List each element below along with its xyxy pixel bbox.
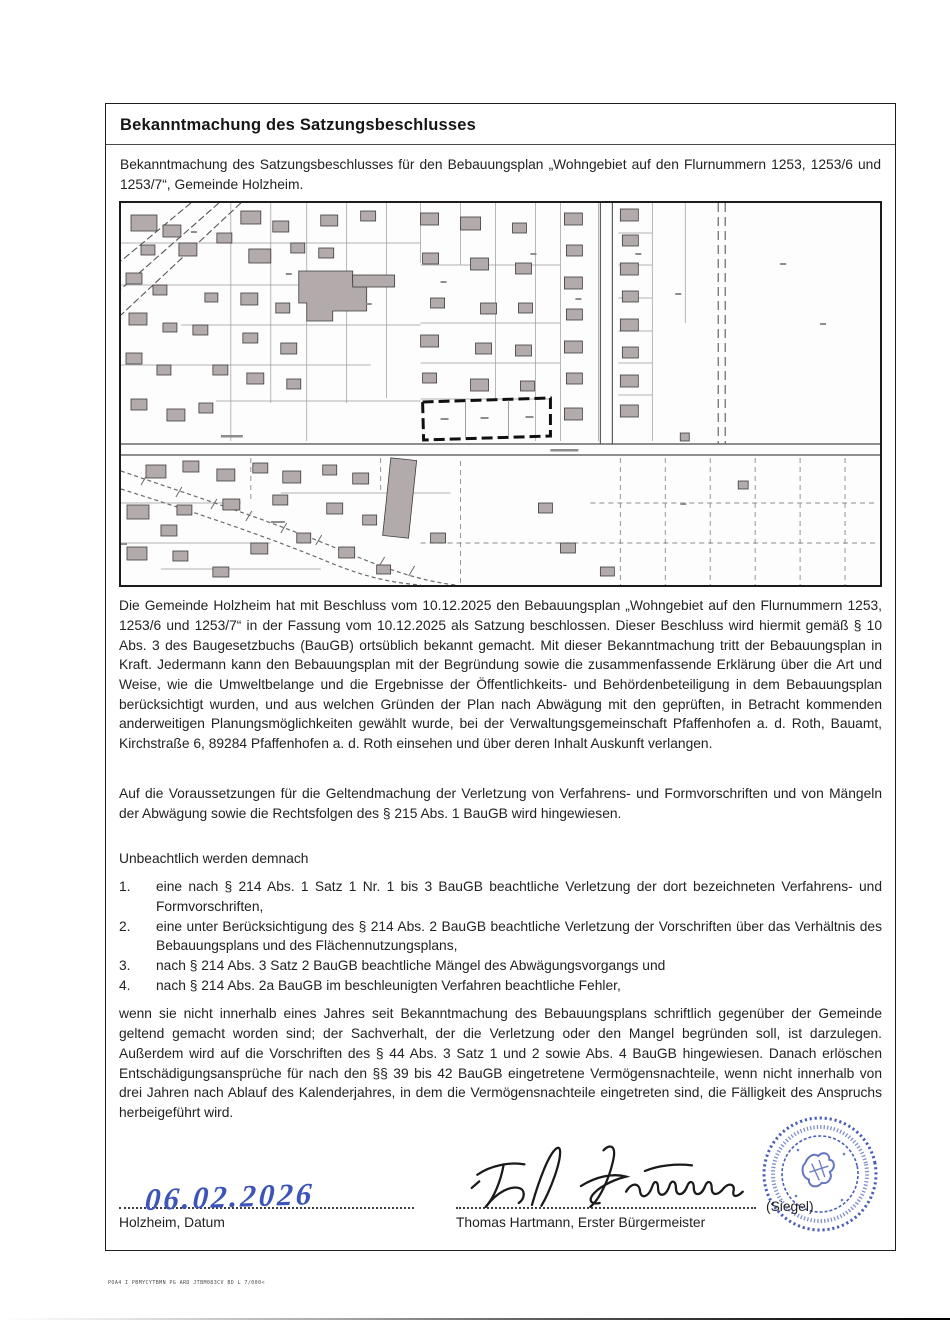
item-text: nach § 214 Abs. 2a BauGB im beschleunigt… — [156, 976, 882, 996]
date-block: 06.02.2026 Holzheim, Datum — [119, 1147, 414, 1230]
item-number: 3. — [119, 956, 156, 976]
footer-reference: POA4 I PBMYCYTBMN PG ARD JTBM083CV BD L … — [108, 1280, 265, 1286]
handwritten-date-script: 06.02.2026 — [144, 1176, 316, 1218]
item-number: 4. — [119, 976, 156, 996]
seal-label: (Siegel) — [766, 1199, 814, 1214]
title-row: Bekanntmachung des Satzungsbeschlusses — [106, 104, 895, 145]
document-frame: Bekanntmachung des Satzungsbeschlusses B… — [105, 103, 896, 1251]
seal-block: (Siegel) — [756, 1198, 882, 1230]
list-item: 4. nach § 214 Abs. 2a BauGB im beschleun… — [119, 976, 882, 996]
item-number: 1. — [119, 877, 156, 916]
closing-paragraph: wenn sie nicht innerhalb eines Jahres se… — [119, 1004, 882, 1122]
body-paragraph-1: Die Gemeinde Holzheim hat mit Beschluss … — [119, 596, 882, 754]
scanned-document-page: Bekanntmachung des Satzungsbeschlusses B… — [0, 0, 950, 1344]
item-number: 2. — [119, 917, 156, 956]
item-text: eine unter Berücksichtigung des § 214 Ab… — [156, 917, 882, 956]
page-title: Bekanntmachung des Satzungsbeschlusses — [120, 116, 476, 134]
scan-artifact-line — [0, 1318, 950, 1320]
item-text: eine nach § 214 Abs. 1 Satz 1 Nr. 1 bis … — [156, 877, 882, 916]
signature-block: Thomas Hartmann, Erster Bürgermeister — [456, 1147, 756, 1230]
signature-row: 06.02.2026 Holzheim, Datum — [119, 1147, 882, 1230]
list-item: 1. eine nach § 214 Abs. 1 Satz 1 Nr. 1 b… — [119, 877, 882, 916]
item-text: nach § 214 Abs. 3 Satz 2 BauGB beachtlic… — [156, 956, 882, 976]
list-item: 3. nach § 214 Abs. 3 Satz 2 BauGB beacht… — [119, 956, 882, 976]
cadastral-map — [119, 201, 882, 587]
body-paragraph-2: Auf die Voraussetzungen für die Geltendm… — [119, 784, 882, 823]
cadastral-map-image — [121, 203, 880, 585]
date-scribble-area: 06.02.2026 — [119, 1147, 414, 1207]
list-item: 2. eine unter Berücksichtigung des § 214… — [119, 917, 882, 956]
legal-list: 1. eine nach § 214 Abs. 1 Satz 1 Nr. 1 b… — [119, 877, 882, 995]
intro-paragraph: Bekanntmachung des Satzungsbeschlusses f… — [120, 155, 881, 194]
signature-script-icon — [466, 1139, 756, 1219]
signature-scribble-area — [456, 1147, 756, 1207]
list-intro: Unbeachtlich werden demnach — [119, 849, 882, 869]
